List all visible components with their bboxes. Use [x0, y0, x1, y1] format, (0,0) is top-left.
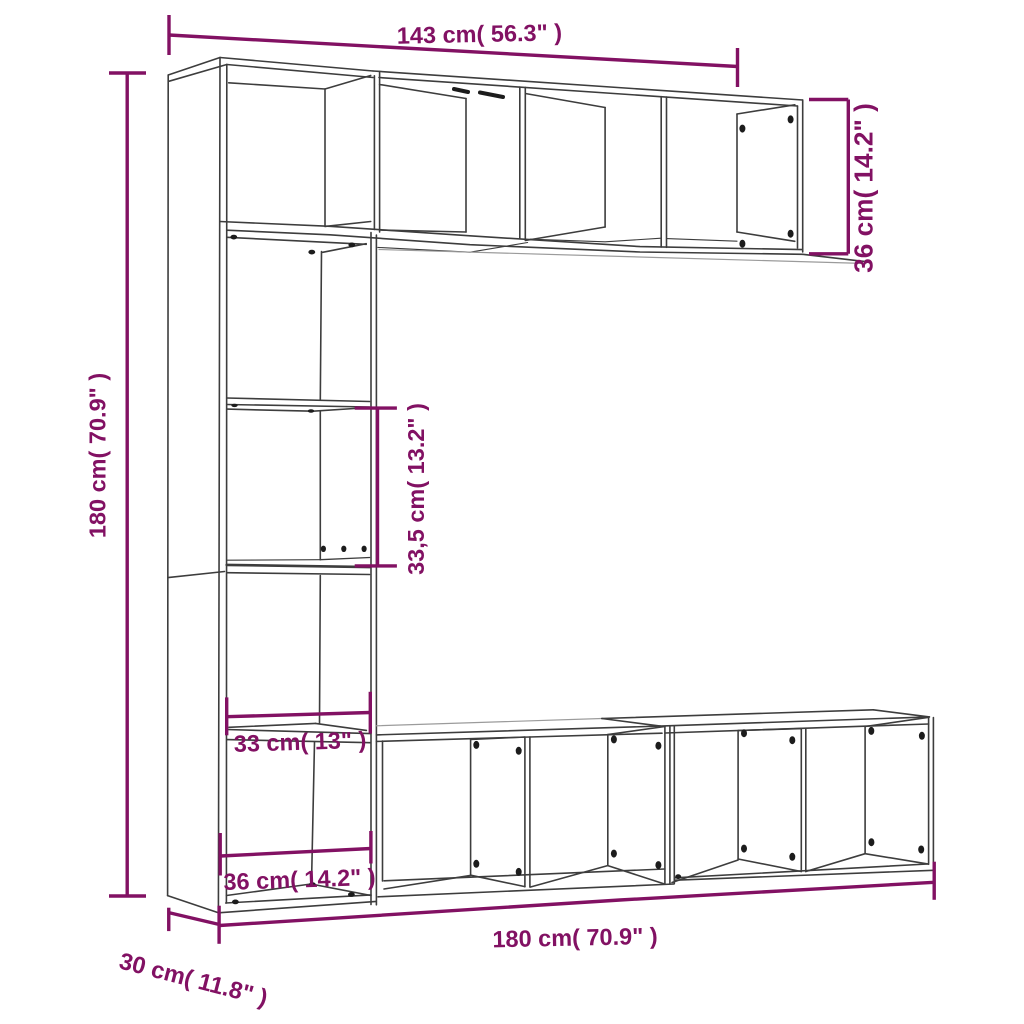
svg-text:36 cm( 14.2" ): 36 cm( 14.2" ): [223, 864, 376, 895]
svg-text:143 cm( 56.3" ): 143 cm( 56.3" ): [397, 19, 563, 48]
svg-text:36 cm( 14.2" ): 36 cm( 14.2" ): [849, 103, 879, 273]
svg-text:180 cm( 70.9" ): 180 cm( 70.9" ): [85, 373, 111, 538]
svg-text:33 cm( 13" ): 33 cm( 13" ): [233, 727, 366, 757]
svg-text:33,5 cm( 13.2" ): 33,5 cm( 13.2" ): [403, 403, 429, 575]
svg-text:180 cm( 70.9" ): 180 cm( 70.9" ): [492, 923, 658, 952]
